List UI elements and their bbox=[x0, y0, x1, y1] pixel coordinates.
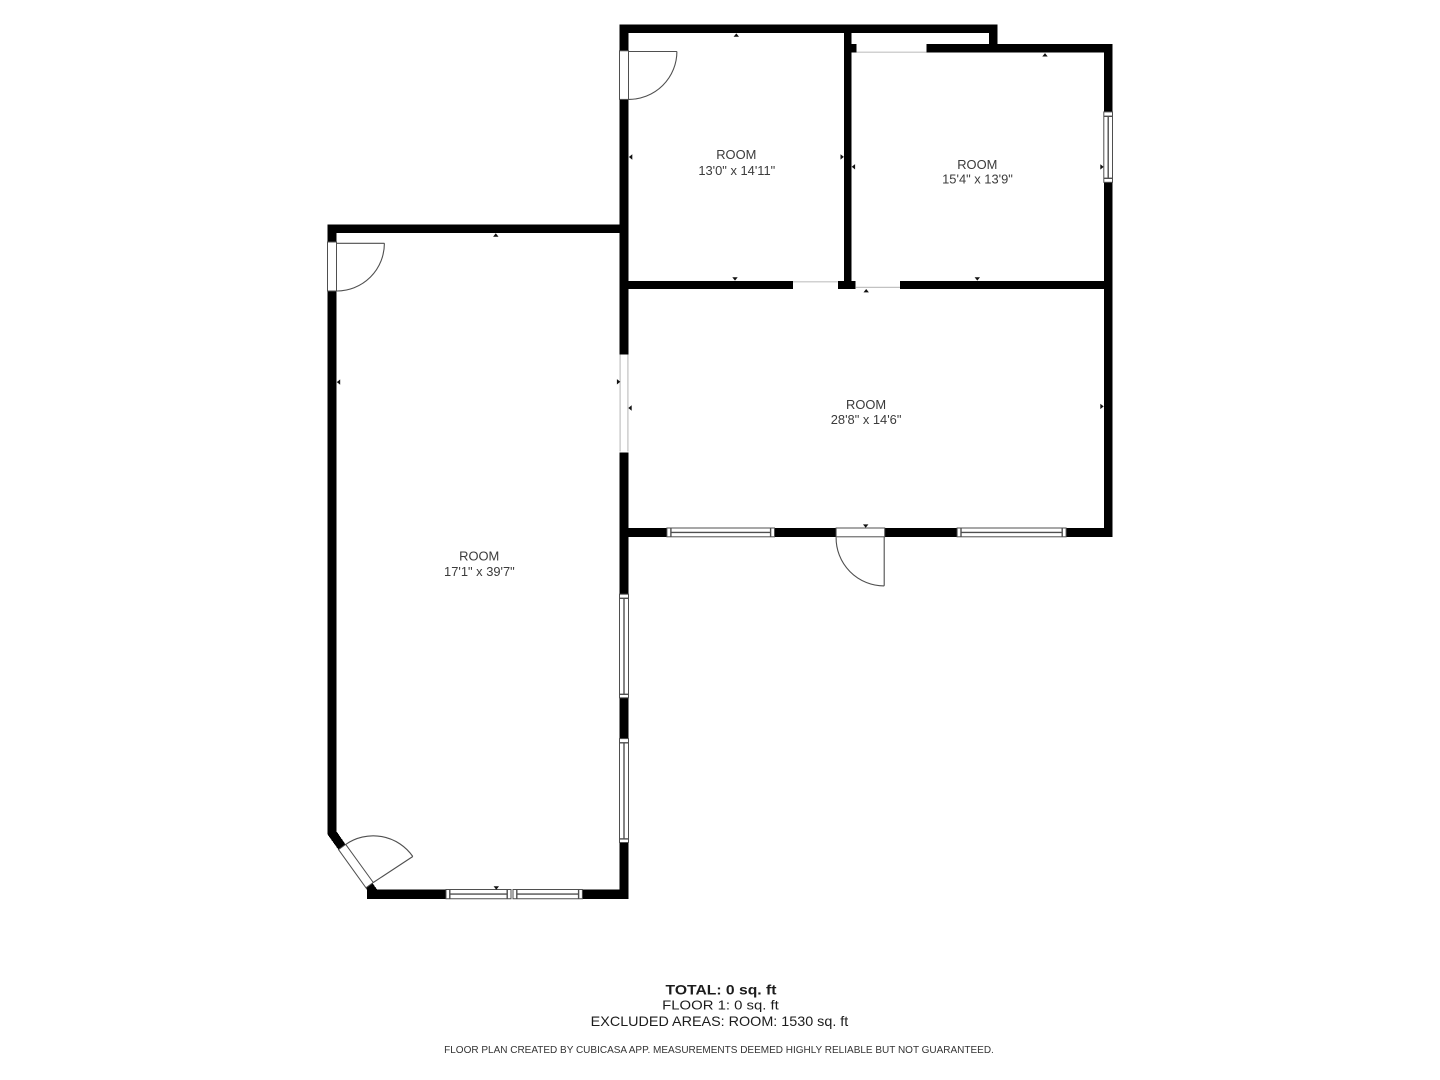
svg-text:17'1" x 39'7": 17'1" x 39'7" bbox=[444, 564, 515, 579]
svg-text:TOTAL: 0 sq. ft: TOTAL: 0 sq. ft bbox=[666, 983, 777, 999]
svg-text:FLOOR PLAN CREATED BY CUBICASA: FLOOR PLAN CREATED BY CUBICASA APP. MEAS… bbox=[444, 1045, 994, 1056]
svg-text:ROOM: ROOM bbox=[846, 397, 886, 412]
svg-text:ROOM: ROOM bbox=[459, 549, 499, 564]
svg-text:EXCLUDED AREAS: ROOM: 1530 sq.: EXCLUDED AREAS: ROOM: 1530 sq. ft bbox=[591, 1013, 849, 1029]
svg-text:13'0" x 14'11": 13'0" x 14'11" bbox=[698, 163, 775, 178]
svg-text:15'4" x 13'9": 15'4" x 13'9" bbox=[942, 171, 1013, 186]
svg-text:28'8" x 14'6": 28'8" x 14'6" bbox=[831, 412, 902, 427]
svg-text:ROOM: ROOM bbox=[957, 157, 997, 172]
svg-text:ROOM: ROOM bbox=[716, 147, 756, 162]
svg-text:FLOOR 1: 0 sq. ft: FLOOR 1: 0 sq. ft bbox=[662, 998, 779, 1013]
